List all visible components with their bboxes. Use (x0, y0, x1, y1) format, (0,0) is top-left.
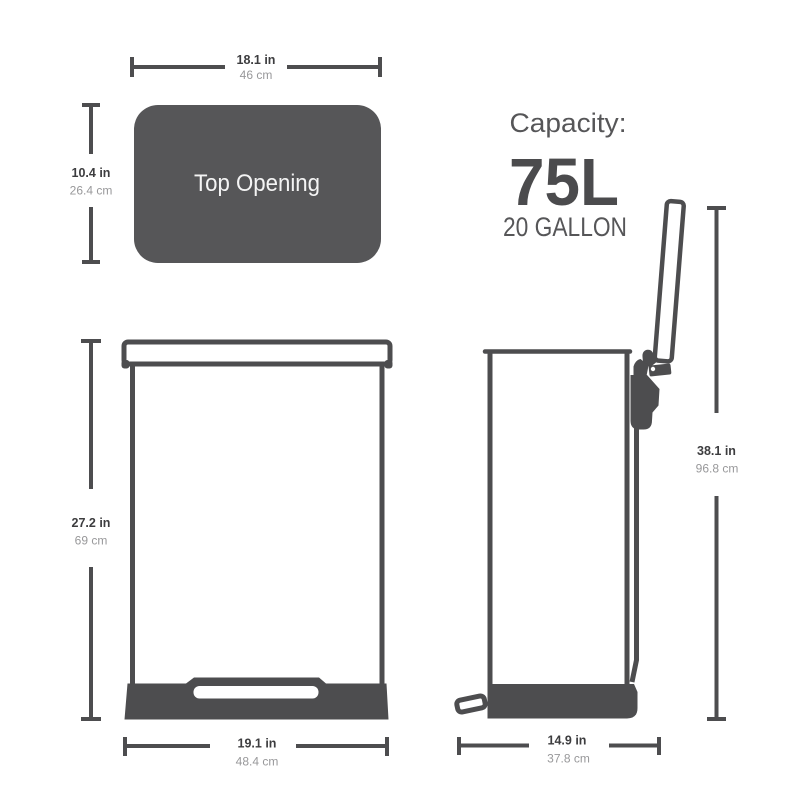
svg-text:10.4 in: 10.4 in (72, 166, 111, 180)
svg-text:20 GALLON: 20 GALLON (503, 212, 627, 242)
svg-text:46 cm: 46 cm (240, 68, 273, 82)
svg-text:48.4 cm: 48.4 cm (236, 755, 279, 769)
svg-text:96.8 cm: 96.8 cm (696, 462, 739, 476)
svg-text:27.2 in: 27.2 in (72, 516, 111, 530)
svg-text:75L: 75L (509, 145, 619, 220)
svg-text:18.1 in: 18.1 in (237, 53, 276, 67)
svg-text:26.4 cm: 26.4 cm (70, 184, 113, 198)
svg-text:19.1 in: 19.1 in (238, 737, 277, 751)
svg-text:37.8 cm: 37.8 cm (547, 752, 590, 766)
svg-text:Top Opening: Top Opening (194, 170, 320, 197)
svg-text:38.1 in: 38.1 in (697, 444, 736, 458)
svg-text:69 cm: 69 cm (75, 534, 108, 548)
svg-text:Capacity:: Capacity: (510, 108, 627, 138)
svg-text:14.9 in: 14.9 in (548, 734, 587, 748)
